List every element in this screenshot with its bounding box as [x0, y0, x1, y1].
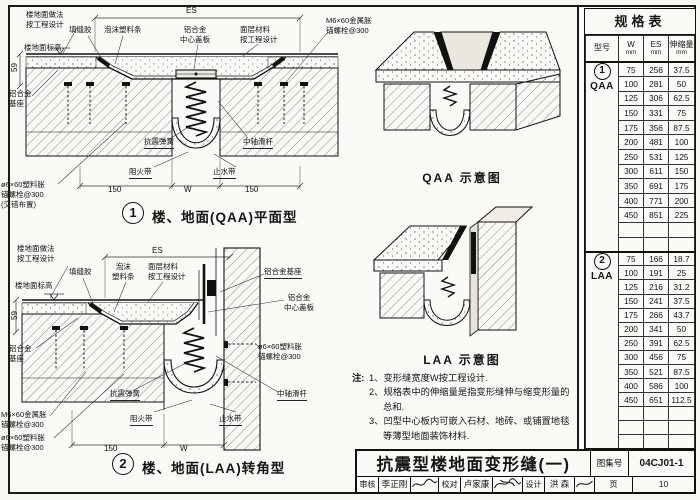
d2-label-floor-finish: 楼地面做法 按工程设计	[17, 244, 55, 264]
spec-cell: 175	[619, 120, 644, 135]
d2-label-floor-level: 楼地面标高	[15, 281, 53, 291]
spec-cell: 87.5	[669, 364, 695, 378]
spec-table: 型号 Wmm ESmm 伸缩量mm 1QAA7525637.5100281501…	[585, 35, 695, 450]
spec-model-QAA: 1QAA	[586, 62, 619, 252]
sheet-title: 抗震型楼地面变形缝(一)	[357, 451, 591, 476]
spec-cell: 241	[644, 294, 669, 308]
laa-schematic-drawing	[368, 202, 568, 350]
spec-cell: 450	[619, 208, 644, 223]
d1-label-fire-barrier: 阻火带	[129, 167, 152, 179]
d1-label-surface-material: 面层材料 按工程设计	[240, 25, 278, 45]
spec-cell: 851	[644, 208, 669, 223]
spec-cell: 531	[644, 150, 669, 165]
d2-dim-es: ES	[152, 246, 163, 255]
spec-cell: 175	[619, 308, 644, 322]
spec-cell: 250	[619, 336, 644, 350]
d2-caption: 楼、地面(LAA)转角型	[142, 457, 285, 477]
d2-dim-59: 59	[10, 311, 19, 320]
qaa-schematic-caption: QAA 示意图	[392, 169, 532, 186]
spec-cell: 75	[619, 62, 644, 77]
spec-cell	[619, 237, 644, 252]
d2-label-m6-anchor: M6×60金属胀 锚螺栓@300	[1, 410, 47, 430]
spec-cell: 75	[669, 106, 695, 121]
spec-cell: 450	[619, 393, 644, 407]
spec-cell: 37.5	[669, 62, 695, 77]
notes-prefix: 注:	[352, 371, 369, 443]
spec-cell: 200	[619, 135, 644, 150]
spec-cell: 150	[619, 294, 644, 308]
d1-label-water-stop: 止水带	[213, 167, 236, 179]
d2-label-plastic-anchor-bl: ø6×60塑料胀 锚螺栓@300	[1, 433, 45, 453]
spec-cell: 191	[644, 266, 669, 280]
spec-cell: 341	[644, 322, 669, 336]
spec-cell: 100	[619, 77, 644, 92]
d2-label-fire-barrier: 阻火带	[130, 414, 153, 426]
spec-cell: 150	[669, 164, 695, 179]
spec-cell: 75	[619, 252, 644, 266]
spec-col-amount: 伸缩量mm	[669, 36, 695, 63]
spec-cell: 281	[644, 77, 669, 92]
d1-label-sealant: 填缝胶	[69, 25, 92, 35]
spec-cell: 331	[644, 106, 669, 121]
spec-cell: 62.5	[669, 91, 695, 106]
spec-row: 1QAA7525637.5	[586, 62, 695, 77]
table-divider-line	[577, 5, 579, 494]
spec-col-es: ESmm	[644, 36, 669, 63]
spec-cell: 391	[644, 336, 669, 350]
note-item-1: 1、变形缝宽度W按工程设计.	[369, 371, 576, 385]
spec-cell	[619, 223, 644, 238]
spec-cell: 225	[669, 208, 695, 223]
spec-cell	[619, 421, 644, 435]
spec-cell: 125	[619, 280, 644, 294]
spec-cell: 150	[619, 106, 644, 121]
d1-label-floor-finish: 楼地面做法 按工程设计	[26, 10, 64, 30]
spec-col-w: Wmm	[619, 36, 644, 63]
spec-cell: 300	[619, 350, 644, 364]
note-item-3: 3、凹型中心板内可嵌入石材、地砖、或铺置地毯等薄型地面装饰材料.	[369, 414, 576, 443]
spec-cell: 400	[619, 379, 644, 393]
d1-label-plastic-anchor: ø6×60塑料胀 锚螺栓@300 (交错布置)	[1, 180, 45, 209]
laa-schematic-caption: LAA 示意图	[392, 351, 532, 368]
qaa-schematic-drawing	[368, 18, 568, 168]
d1-label-m6-anchor: M6×60金属胀 锚螺栓@300	[326, 16, 372, 36]
spec-cell: 25	[669, 266, 695, 280]
spec-table-panel: 规格表 型号 Wmm ESmm 伸缩量mm 1QAA7525637.510028…	[584, 8, 696, 449]
d2-number-badge: 2	[112, 453, 134, 475]
spec-group-qaa: 1QAA7525637.51002815012530662.5150331751…	[586, 62, 695, 252]
d2-label-alu-center-plate: 铝合金 中心盖板	[284, 293, 314, 313]
spec-cell: 62.5	[669, 336, 695, 350]
spec-cell: 50	[669, 322, 695, 336]
spec-cell: 306	[644, 91, 669, 106]
spec-model-LAA: 2LAA	[586, 252, 619, 449]
spec-cell: 216	[644, 280, 669, 294]
atlas-page: 楼地面做法 按工程设计 填缝胶 泡沫塑料条 铝合金 中心盖板 面层材料 按工程设…	[0, 0, 700, 500]
spec-cell: 250	[619, 150, 644, 165]
spec-cell: 87.5	[669, 120, 695, 135]
spec-cell: 256	[644, 62, 669, 77]
spec-cell: 75	[669, 350, 695, 364]
spec-cell	[644, 223, 669, 238]
spec-cell: 651	[644, 393, 669, 407]
spec-cell: 300	[619, 164, 644, 179]
spec-cell	[669, 237, 695, 252]
spec-col-model: 型号	[586, 36, 619, 63]
d2-label-slide-bar: 中轴滑杆	[277, 389, 307, 401]
title-block: 抗震型楼地面变形缝(一) 图集号 04CJ01-1 审核 李正刚 校对 卢家康 …	[355, 449, 696, 494]
spec-cell: 125	[669, 150, 695, 165]
spec-cell	[644, 435, 669, 449]
d1-label-foam-strip: 泡沫塑料条	[104, 25, 142, 35]
spec-cell: 43.7	[669, 308, 695, 322]
d2-dim-150: 150	[104, 444, 117, 453]
spec-cell: 18.7	[669, 252, 695, 266]
spec-cell	[644, 407, 669, 421]
spec-cell: 37.5	[669, 294, 695, 308]
d2-label-sealant: 填缝胶	[69, 267, 92, 277]
d2-label-alu-base: 铝合金 基座	[9, 344, 32, 364]
spec-cell: 586	[644, 379, 669, 393]
atlas-number: 04CJ01-1	[629, 451, 694, 476]
spec-cell: 200	[619, 322, 644, 336]
d1-dim-150-right: 150	[245, 185, 258, 194]
notes-block: 注: 1、变形缝宽度W按工程设计. 2、规格表中的伸缩量是指变形缝伸与缩变形量的…	[352, 371, 576, 443]
spec-cell: 400	[619, 193, 644, 208]
d1-label-slide-bar: 中轴滑杆	[243, 137, 273, 149]
d2-label-plastic-anchor-right: ø6×60塑料胀 锚螺栓@300	[258, 342, 302, 362]
spec-cell: 200	[669, 193, 695, 208]
spec-cell: 166	[644, 252, 669, 266]
d2-label-spring: 抗震弹簧	[110, 389, 140, 401]
spec-row: 2LAA7516618.7	[586, 252, 695, 266]
spec-cell: 350	[619, 179, 644, 194]
d1-label-alu-base: 铝合金 基座	[9, 89, 32, 109]
spec-cell: 611	[644, 164, 669, 179]
d2-label-foam-strip: 泡沫 塑料条	[112, 262, 135, 282]
d1-dim-150-left: 150	[108, 185, 121, 194]
spec-cell	[644, 237, 669, 252]
d2-dim-w: W	[180, 444, 188, 453]
spec-cell: 31.2	[669, 280, 695, 294]
qaa-section-drawing	[8, 6, 350, 206]
designer-signature	[575, 477, 595, 492]
spec-cell: 266	[644, 308, 669, 322]
spec-cell: 456	[644, 350, 669, 364]
spec-cell: 481	[644, 135, 669, 150]
spec-cell	[669, 421, 695, 435]
spec-cell	[669, 223, 695, 238]
spec-cell	[669, 435, 695, 449]
d1-number-badge: 1	[122, 202, 144, 224]
spec-cell	[644, 421, 669, 435]
spec-cell: 112.5	[669, 393, 695, 407]
d2-label-surface-material: 面层材料 按工程设计	[148, 262, 186, 282]
d1-label-floor-level: 楼地面标高	[24, 43, 62, 53]
d2-label-alu-base-right: 铝合金基座	[264, 267, 302, 279]
d1-caption: 楼、地面(QAA)平面型	[152, 206, 298, 226]
spec-cell: 175	[669, 179, 695, 194]
atlas-number-label: 图集号	[591, 451, 629, 476]
d1-label-spring: 抗震弹簧	[144, 137, 174, 149]
spec-cell: 125	[619, 91, 644, 106]
spec-cell	[669, 407, 695, 421]
spec-cell: 356	[644, 120, 669, 135]
d1-label-alu-center-plate: 铝合金 中心盖板	[180, 25, 210, 45]
note-item-2: 2、规格表中的伸缩量是指变形缝伸与缩变形量的总和.	[369, 385, 576, 414]
spec-group-laa: 2LAA7516618.71001912512521631.215024137.…	[586, 252, 695, 449]
spec-cell	[619, 407, 644, 421]
spec-cell	[619, 435, 644, 449]
d1-dim-59: 59	[10, 63, 19, 72]
spec-cell: 771	[644, 193, 669, 208]
d2-label-water-stop: 止水带	[219, 414, 242, 426]
d1-dim-w: W	[184, 185, 192, 194]
spec-cell: 50	[669, 77, 695, 92]
d1-dim-es: ES	[186, 6, 197, 15]
spec-table-title: 规格表	[585, 9, 695, 35]
spec-cell: 350	[619, 364, 644, 378]
spec-cell: 691	[644, 179, 669, 194]
spec-cell: 100	[619, 266, 644, 280]
spec-cell: 521	[644, 364, 669, 378]
spec-cell: 100	[669, 379, 695, 393]
spec-cell: 100	[669, 135, 695, 150]
